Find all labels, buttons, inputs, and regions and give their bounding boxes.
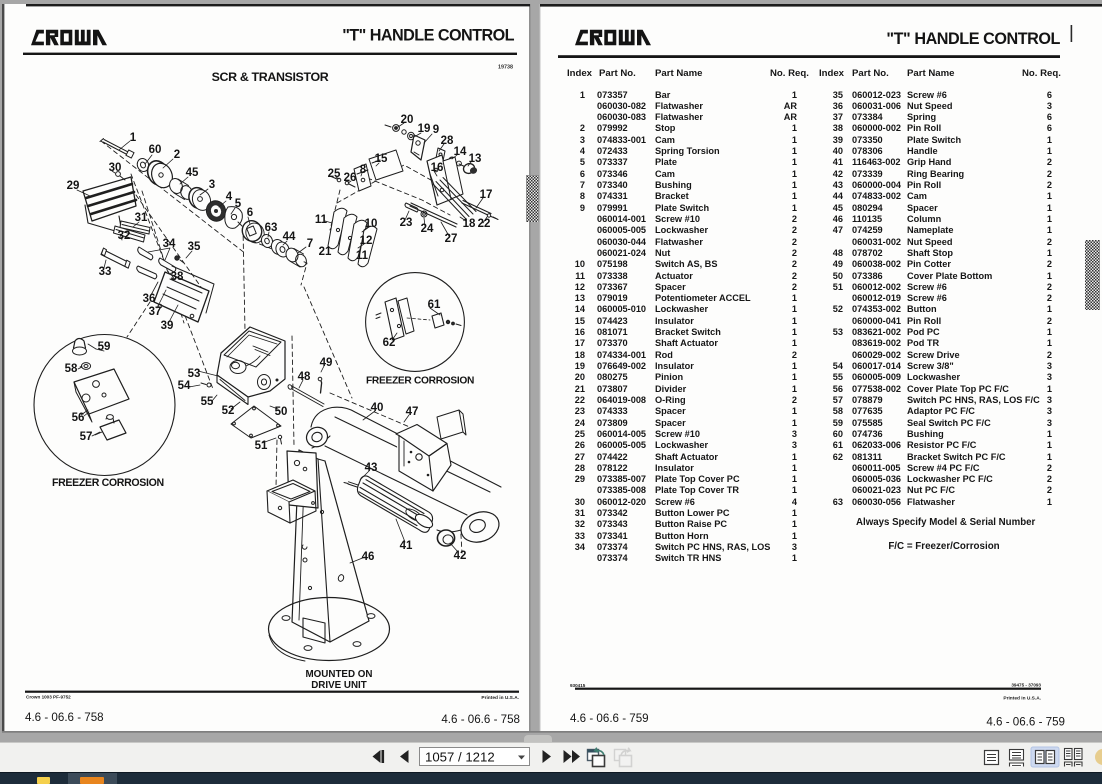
svg-text:49: 49 <box>320 357 333 369</box>
svg-text:Crown 1003 PF-9752: Crown 1003 PF-9752 <box>26 695 71 700</box>
svg-text:19: 19 <box>418 123 431 135</box>
svg-text:39475 - 37093: 39475 - 37093 <box>1011 683 1041 688</box>
svg-text:29: 29 <box>67 180 80 192</box>
svg-text:4.6 - 06.6 - 759: 4.6 - 06.6 - 759 <box>986 716 1065 729</box>
svg-text:38: 38 <box>171 271 184 283</box>
svg-text:25: 25 <box>328 168 341 180</box>
svg-text:6: 6 <box>247 207 253 219</box>
svg-text:15: 15 <box>375 153 388 165</box>
svg-text:930415: 930415 <box>570 683 586 688</box>
svg-text:42: 42 <box>454 550 467 562</box>
svg-text:41: 41 <box>400 540 413 552</box>
svg-text:4.6 - 06.6 - 758: 4.6 - 06.6 - 758 <box>441 713 520 726</box>
svg-text:56: 56 <box>72 412 85 424</box>
svg-text:52: 52 <box>222 405 235 417</box>
svg-text:20: 20 <box>401 114 414 126</box>
svg-text:1: 1 <box>130 132 137 144</box>
svg-text:3: 3 <box>209 179 215 191</box>
svg-text:4: 4 <box>226 191 233 203</box>
svg-text:23: 23 <box>400 217 413 229</box>
svg-text:36: 36 <box>143 293 156 305</box>
svg-text:34: 34 <box>163 238 176 250</box>
svg-text:27: 27 <box>445 233 458 245</box>
svg-text:18: 18 <box>463 218 476 230</box>
svg-text:35: 35 <box>188 241 201 253</box>
svg-text:21: 21 <box>319 246 332 258</box>
svg-text:54: 54 <box>178 380 191 392</box>
svg-text:44: 44 <box>283 231 296 243</box>
svg-text:51: 51 <box>255 440 268 452</box>
svg-text:31: 31 <box>135 212 148 224</box>
svg-text:"T" HANDLE CONTROL: "T" HANDLE CONTROL <box>342 26 514 44</box>
svg-text:19738: 19738 <box>498 65 513 71</box>
svg-text:47: 47 <box>406 406 419 418</box>
svg-text:2: 2 <box>174 149 180 161</box>
svg-text:37: 37 <box>149 306 162 318</box>
svg-text:"T" HANDLE CONTROL: "T" HANDLE CONTROL <box>886 30 1060 48</box>
svg-text:63: 63 <box>265 222 278 234</box>
svg-text:Printed in U.S.A.: Printed in U.S.A. <box>481 695 519 701</box>
svg-text:DRIVE UNIT: DRIVE UNIT <box>311 680 367 691</box>
svg-text:33: 33 <box>99 266 112 278</box>
svg-text:22: 22 <box>478 218 491 230</box>
svg-text:60: 60 <box>149 144 162 156</box>
svg-text:32: 32 <box>118 230 131 242</box>
svg-text:FREEZER CORROSION: FREEZER CORROSION <box>366 376 474 387</box>
svg-text:12: 12 <box>360 235 373 247</box>
svg-text:58: 58 <box>65 363 78 375</box>
svg-text:9: 9 <box>433 124 439 136</box>
svg-text:53: 53 <box>188 368 201 380</box>
svg-text:MOUNTED ON: MOUNTED ON <box>306 669 373 680</box>
svg-text:62: 62 <box>383 337 396 349</box>
svg-text:1057 / 1212: 1057 / 1212 <box>425 750 495 765</box>
svg-text:55: 55 <box>201 396 214 408</box>
svg-text:48: 48 <box>298 371 311 383</box>
svg-text:11: 11 <box>356 250 369 262</box>
svg-text:16: 16 <box>431 162 444 174</box>
svg-text:Printed in U.S.A.: Printed in U.S.A. <box>1003 696 1041 702</box>
svg-text:FREEZER CORROSION: FREEZER CORROSION <box>52 477 164 489</box>
svg-text:26: 26 <box>344 172 357 184</box>
svg-text:39: 39 <box>161 320 174 332</box>
svg-text:45: 45 <box>186 167 199 179</box>
svg-text:50: 50 <box>275 406 288 418</box>
svg-text:30: 30 <box>109 162 122 174</box>
svg-text:SCR & TRANSISTOR: SCR & TRANSISTOR <box>212 70 329 84</box>
svg-text:7: 7 <box>307 238 313 250</box>
svg-text:10: 10 <box>365 218 378 230</box>
svg-text:28: 28 <box>441 135 454 147</box>
svg-text:8: 8 <box>360 164 367 176</box>
svg-text:11: 11 <box>315 214 328 226</box>
svg-text:59: 59 <box>98 341 111 353</box>
svg-text:14: 14 <box>454 146 467 158</box>
svg-text:5: 5 <box>235 198 242 210</box>
svg-text:4.6 - 06.6 - 758: 4.6 - 06.6 - 758 <box>25 711 104 724</box>
svg-text:4.6 - 06.6 - 759: 4.6 - 06.6 - 759 <box>570 712 649 725</box>
svg-text:61: 61 <box>428 299 441 311</box>
svg-text:17: 17 <box>480 189 493 201</box>
svg-text:13: 13 <box>469 153 482 165</box>
svg-text:40: 40 <box>371 402 384 414</box>
svg-text:43: 43 <box>365 462 378 474</box>
svg-text:46: 46 <box>362 551 375 563</box>
svg-text:24: 24 <box>421 223 434 235</box>
svg-text:57: 57 <box>80 431 93 443</box>
